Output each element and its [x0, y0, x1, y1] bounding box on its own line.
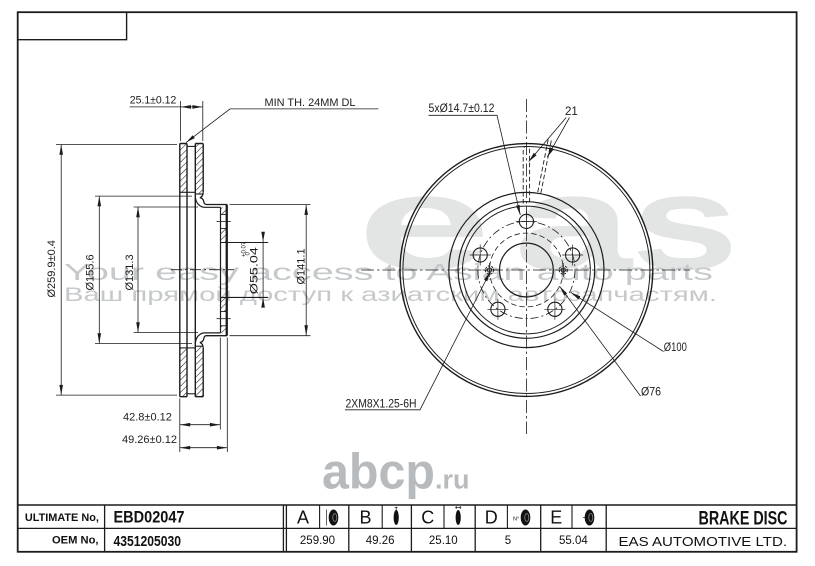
- svg-text:Ø259.9±0.4: Ø259.9±0.4: [46, 240, 58, 297]
- svg-text:5xØ14.7±0.12: 5xØ14.7±0.12: [429, 103, 495, 115]
- svg-text:49.26: 49.26: [366, 535, 395, 547]
- svg-text:49.26±0.12: 49.26±0.12: [122, 434, 177, 446]
- svg-text:EAS AUTOMOTIVE LTD.: EAS AUTOMOTIVE LTD.: [619, 534, 788, 549]
- svg-text:2XM8X1.25-6H: 2XM8X1.25-6H: [346, 399, 417, 411]
- svg-text:25.10: 25.10: [429, 535, 458, 547]
- svg-text:Ø155.6: Ø155.6: [85, 254, 97, 290]
- svg-text:42.8±0.12: 42.8±0.12: [123, 412, 172, 424]
- svg-text:Ø131.3: Ø131.3: [124, 254, 136, 290]
- svg-text:ULTIMATE No,: ULTIMATE No,: [25, 512, 99, 524]
- svg-text:BRAKE DISC: BRAKE DISC: [699, 507, 788, 529]
- svg-text:Ваш прямой доступ к азиатским: Ваш прямой доступ к азиатским автозапчас…: [64, 285, 717, 306]
- svg-text:OEM No,: OEM No,: [52, 535, 99, 547]
- svg-text:Ø76: Ø76: [641, 387, 661, 399]
- svg-text:Your easy access to Asian auto: Your easy access to Asian auto parts: [64, 259, 713, 285]
- svg-text:.ru: .ru: [435, 465, 470, 495]
- svg-text:4351205030: 4351205030: [114, 533, 182, 550]
- svg-text:Ø141.1: Ø141.1: [296, 248, 308, 284]
- svg-text:Ø100: Ø100: [664, 342, 687, 354]
- svg-text:abcp: abcp: [322, 444, 435, 500]
- svg-text:C: C: [421, 508, 434, 528]
- svg-text:D: D: [485, 508, 498, 528]
- svg-text:A: A: [297, 508, 309, 528]
- svg-text:55.04: 55.04: [559, 535, 588, 547]
- svg-text:25.1±0.12: 25.1±0.12: [130, 95, 177, 107]
- svg-text:N°: N°: [513, 517, 519, 523]
- svg-text:21: 21: [565, 106, 578, 118]
- svg-text:MIN TH. 24MM DL: MIN TH. 24MM DL: [265, 97, 356, 109]
- svg-text:5: 5: [505, 535, 511, 547]
- svg-text:E: E: [550, 508, 562, 528]
- svg-text:259.90: 259.90: [300, 535, 335, 547]
- svg-text:B: B: [359, 508, 371, 528]
- svg-text:EBD02047: EBD02047: [114, 508, 185, 527]
